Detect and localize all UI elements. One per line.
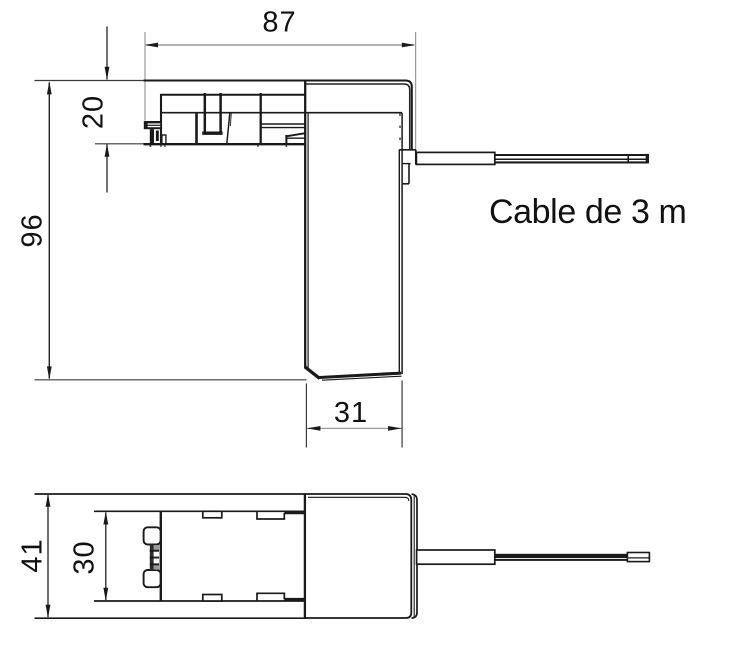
svg-text:96: 96 [17, 213, 49, 247]
svg-text:30: 30 [69, 540, 101, 574]
svg-text:20: 20 [78, 95, 110, 129]
svg-text:87: 87 [262, 7, 296, 39]
svg-text:Cable de 3 m: Cable de 3 m [489, 193, 686, 231]
svg-text:31: 31 [334, 397, 368, 429]
svg-text:41: 41 [17, 538, 49, 572]
